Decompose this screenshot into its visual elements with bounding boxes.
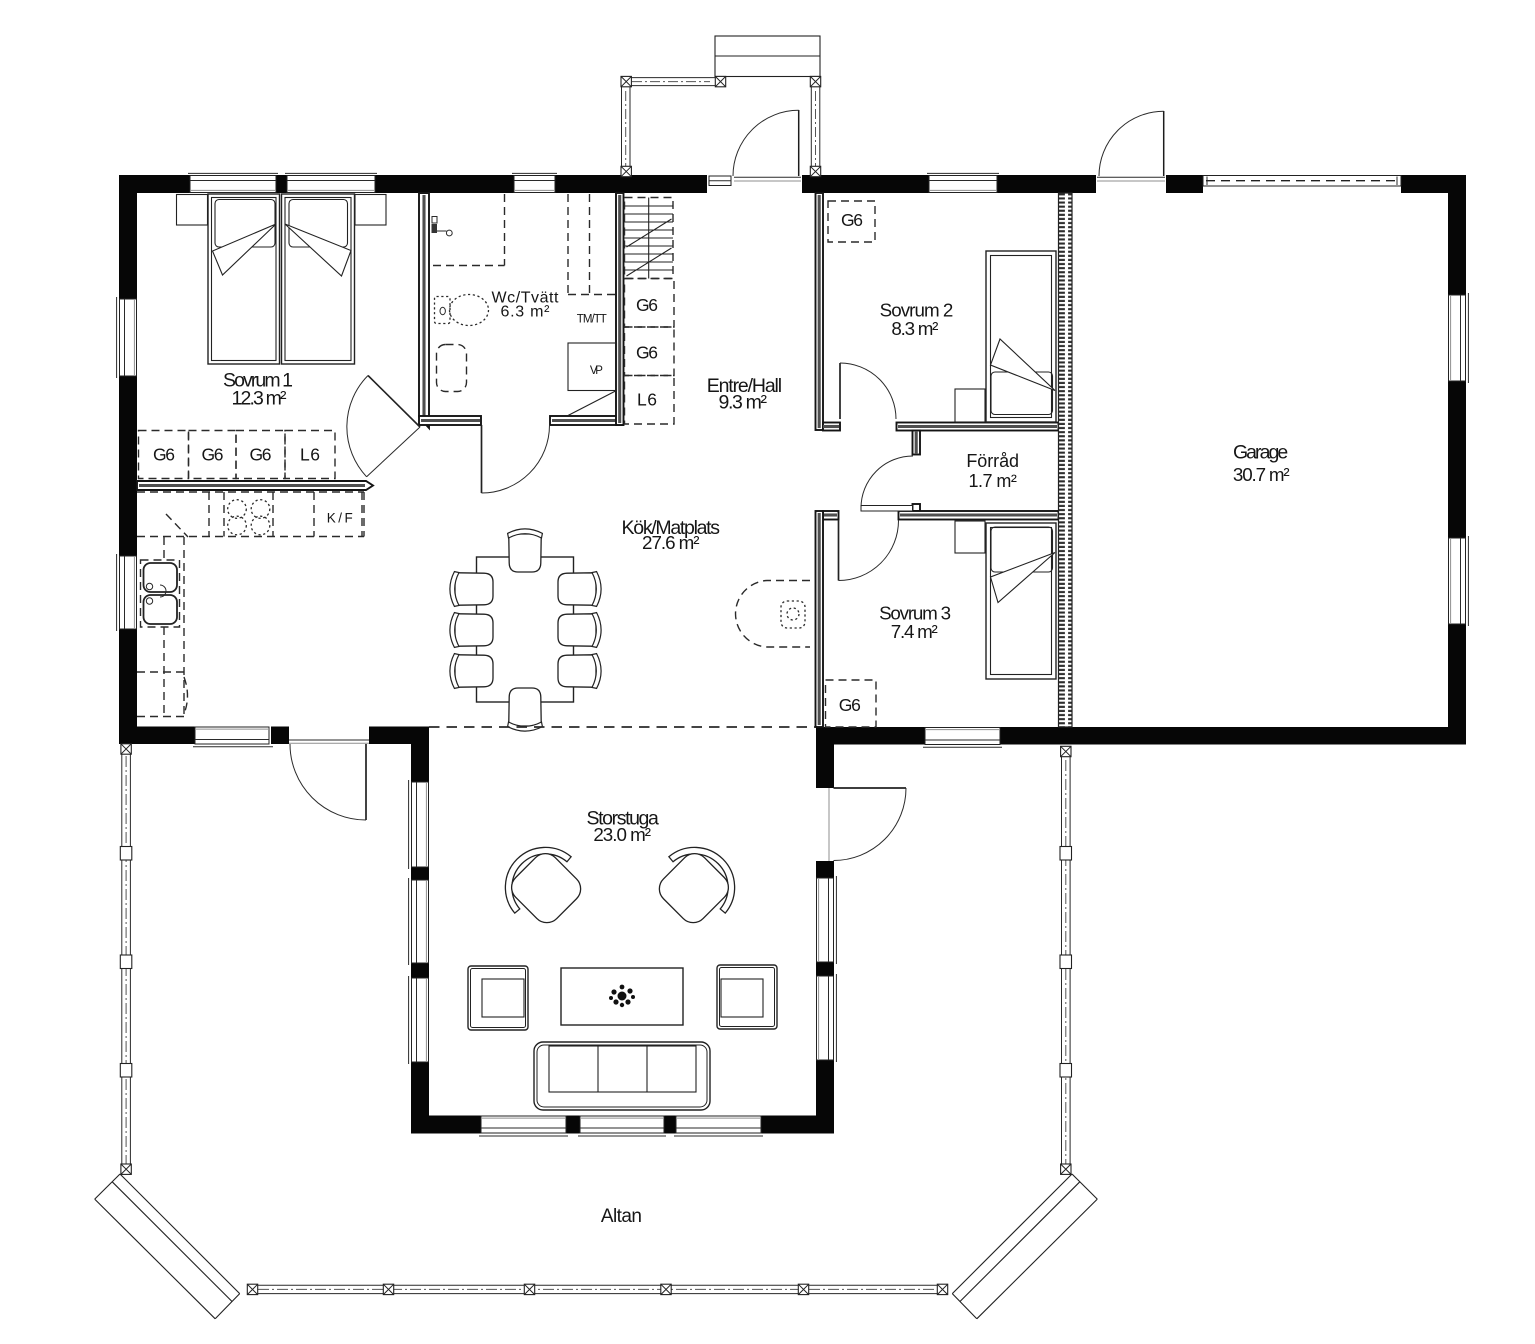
svg-text:TM/TT: TM/TT [577,314,607,326]
svg-text:8.3 m²: 8.3 m² [891,318,938,339]
svg-text:6.3 m²: 6.3 m² [501,304,551,321]
svg-text:1.7 m²: 1.7 m² [969,471,1017,491]
svg-text:G6: G6 [202,444,224,464]
svg-text:30.7 m²: 30.7 m² [1233,464,1290,485]
svg-text:G6: G6 [839,695,861,715]
svg-text:Garage: Garage [1233,441,1288,463]
svg-text:G6: G6 [841,210,863,230]
svg-text:27.6 m²: 27.6 m² [642,532,700,553]
svg-text:12.3 m²: 12.3 m² [232,388,288,410]
svg-text:Förråd: Förråd [966,451,1019,471]
svg-text:L6: L6 [300,444,320,464]
svg-text:Altan: Altan [601,1206,642,1227]
svg-text:K/F: K/F [327,510,353,525]
svg-text:7.4 m²: 7.4 m² [891,621,938,642]
svg-text:G6: G6 [636,295,658,315]
svg-text:G6: G6 [250,444,272,464]
svg-text:9.3 m²: 9.3 m² [718,392,767,414]
svg-text:G6: G6 [153,444,175,464]
svg-text:VP: VP [590,365,603,377]
svg-text:G6: G6 [636,343,658,363]
svg-text:L6: L6 [637,390,657,410]
svg-text:23.0 m²: 23.0 m² [593,824,651,845]
